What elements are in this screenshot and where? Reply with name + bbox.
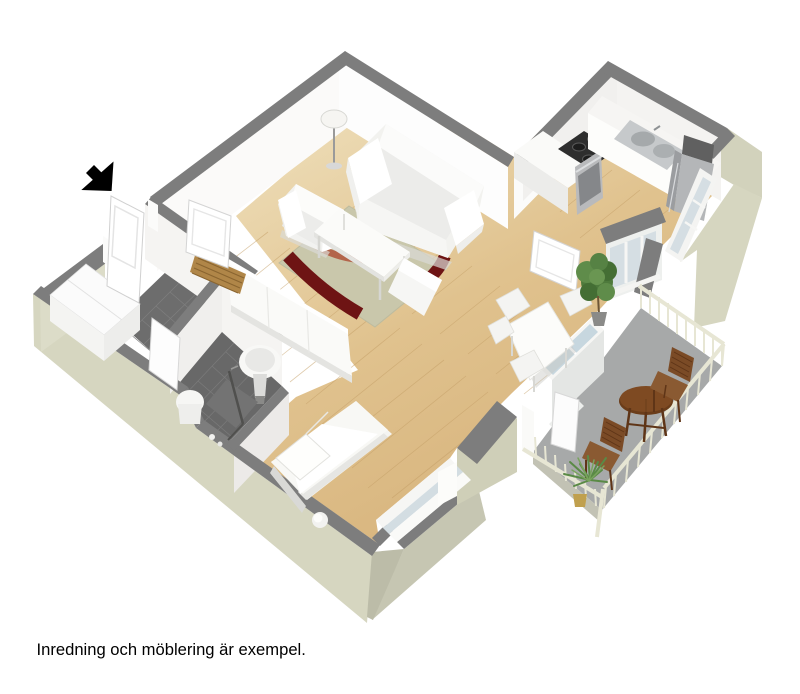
svg-text:Inredning och möblering är exe: Inredning och möblering är exempel.	[37, 640, 306, 659]
